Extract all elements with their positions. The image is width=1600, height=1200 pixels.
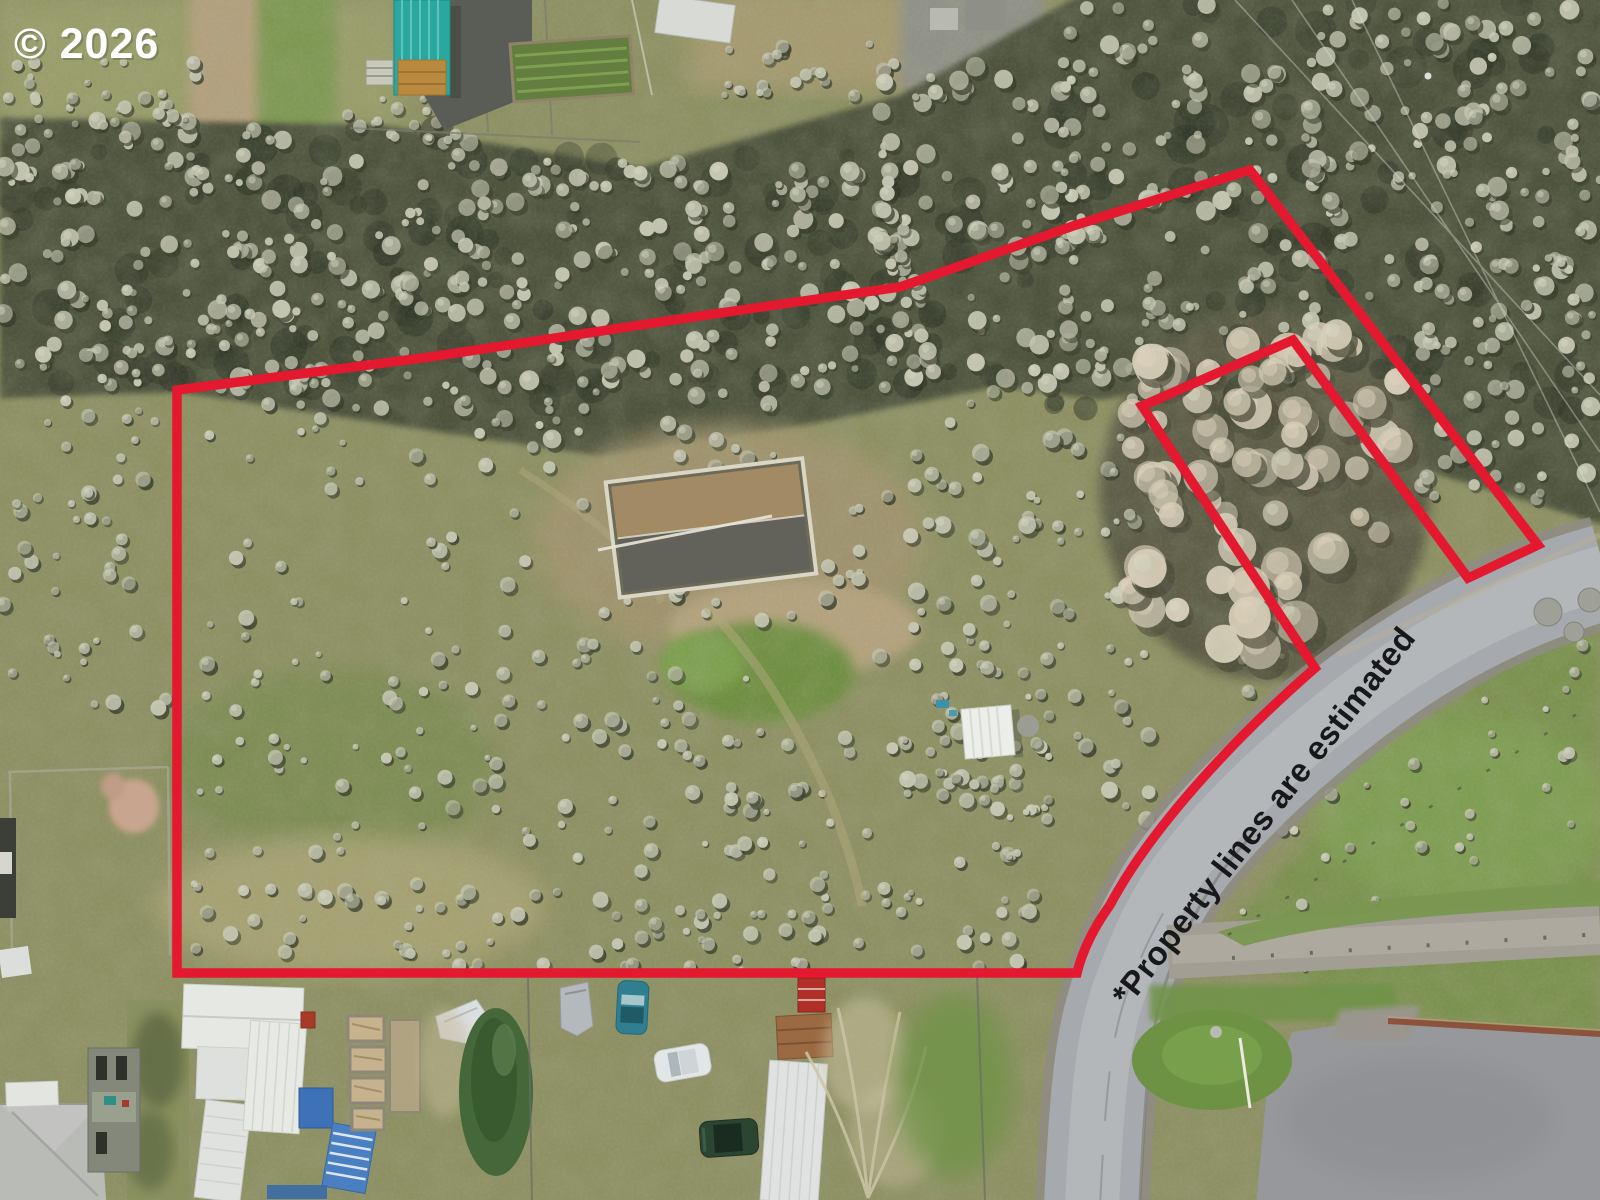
junk-bins (348, 1016, 420, 1130)
blue-tarp (267, 1185, 327, 1199)
red-item (122, 1100, 129, 1107)
conifer-tree (459, 1008, 533, 1176)
gray-debris (1017, 715, 1039, 737)
garden-plot (510, 36, 634, 102)
white-shed (961, 704, 1023, 762)
structure-left-white (0, 852, 12, 874)
small-shed-top-2 (965, 0, 1005, 30)
pallet (366, 60, 393, 85)
small-white-roof (6, 1081, 59, 1107)
blue-container (299, 1088, 333, 1128)
red-chimney (301, 1012, 315, 1028)
parking-shade (1285, 1058, 1555, 1182)
teal-car (616, 980, 650, 1035)
dried-bush-small (101, 773, 125, 799)
house-two-story (88, 1048, 140, 1172)
green-car (699, 1118, 759, 1158)
mound-rock (1210, 1026, 1222, 1038)
white-roof-right (243, 1020, 307, 1134)
gray-boat (560, 982, 593, 1036)
power-pole (1425, 73, 1432, 80)
aerial-photo-canvas: *Property lines are estimated © 2026 © 2… (0, 0, 1600, 1200)
blue-tarp-bit (936, 700, 949, 708)
small-white-roof-top (0, 946, 32, 978)
shed-wood-end (398, 60, 446, 95)
aerial-screenshot: *Property lines are estimated © 2026 © 2… (0, 0, 1600, 1200)
small-shed-top-1 (930, 8, 958, 30)
big-white-roof (760, 1060, 828, 1200)
red-shed (798, 978, 825, 1012)
blue-tarp-bit-2 (949, 710, 957, 716)
teal-item (104, 1096, 116, 1105)
teal-shed (394, 0, 461, 98)
copyright-watermark: © 2026 (14, 20, 159, 68)
green-yard-patch (897, 993, 1013, 1177)
